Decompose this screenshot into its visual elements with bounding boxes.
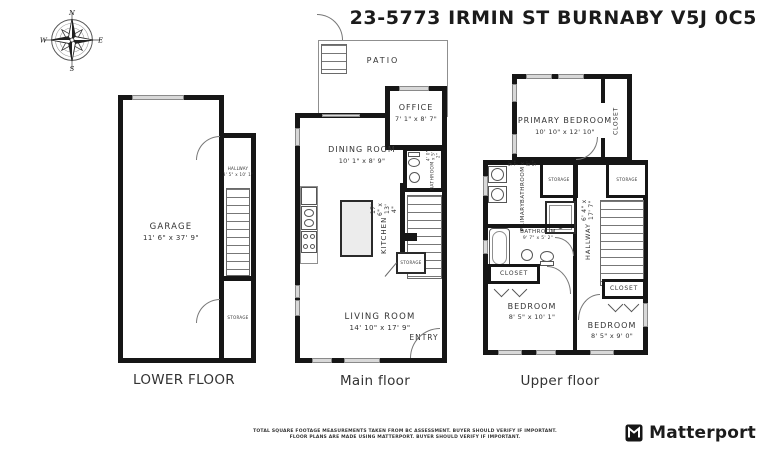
- garage-label: GARAGE: [121, 222, 221, 232]
- wall: [224, 276, 252, 281]
- sink-icon: [491, 168, 504, 181]
- toilet-icon: [408, 152, 420, 157]
- main-storage-label: STORAGE: [398, 260, 424, 265]
- stair-landing: [405, 233, 417, 241]
- sink-icon: [409, 172, 420, 183]
- sink-icon: [521, 249, 533, 261]
- window: [295, 128, 300, 146]
- wall: [400, 183, 405, 253]
- office-label: OFFICE: [387, 103, 445, 112]
- bedroom-left-label: BEDROOM: [490, 302, 574, 311]
- window: [132, 95, 184, 100]
- lower-floor-title: LOWER FLOOR: [118, 372, 250, 388]
- burner-icon: [310, 244, 315, 249]
- matterport-logo: Matterport: [625, 423, 756, 443]
- kitchen-island: [340, 200, 373, 257]
- patio-steps: [321, 44, 347, 74]
- window: [558, 74, 584, 79]
- dining-label: DINING ROOM: [312, 145, 412, 154]
- burner-icon: [303, 234, 308, 239]
- sink-bowl-icon: [304, 219, 314, 227]
- bedroom-left-dims: 8' 5" x 10' 1": [490, 313, 574, 321]
- main-bathroom-dims: 4' 0" x 5' 2": [426, 150, 441, 162]
- matterport-icon: [625, 424, 643, 442]
- window: [512, 84, 517, 102]
- matterport-wordmark: Matterport: [649, 423, 756, 443]
- closet-right-label: CLOSET: [604, 285, 644, 292]
- sink-bowl-icon: [304, 209, 314, 217]
- main-floor-title: Main floor: [325, 373, 425, 389]
- window: [483, 240, 488, 254]
- storage-right-label: STORAGE: [608, 177, 646, 182]
- office-dims: 7' 1" x 8' 7": [387, 115, 445, 123]
- upper-floor-title: Upper floor: [510, 373, 610, 389]
- closet-label: CLOSET: [613, 107, 620, 135]
- bedroom-right-dims: 8' 5" x 9' 0": [578, 332, 646, 340]
- wall: [601, 138, 605, 162]
- main-bathroom-name: BATHROOM: [431, 162, 436, 190]
- primary-bathroom-name-2: BATHROOM: [520, 166, 526, 203]
- window: [344, 358, 380, 363]
- dining-dims: 10' 1" x 8' 9": [312, 157, 412, 165]
- floorplan-sheet: 23-5773 IRMIN ST BURNABY V5J 0C5 N E S W…: [0, 0, 770, 450]
- bathtub-inner: [492, 231, 507, 265]
- window: [399, 86, 429, 91]
- lower-hallway-dims: 3' 5" x 10' 1": [221, 172, 255, 177]
- compass-west-label: W: [40, 36, 48, 44]
- door-arc: [317, 14, 343, 40]
- bathroom2-label: BATHROOM: [508, 229, 568, 235]
- disclaimer-line-2: FLOOR PLANS ARE MADE USING MATTERPORT. B…: [195, 435, 615, 441]
- page-title: 23-5773 IRMIN ST BURNABY V5J 0C5: [350, 7, 757, 29]
- window: [312, 358, 332, 363]
- hallway-label: HALLWAY 6' 4" x 17' 7": [578, 198, 598, 260]
- window: [295, 285, 300, 298]
- window: [295, 300, 300, 316]
- kitchen-label: KITCHEN 17' 6" x 13' 4": [372, 202, 396, 254]
- fridge-icon: [301, 187, 317, 205]
- hallway-dims: 6' 4" x 17' 7": [581, 198, 595, 223]
- compass-north-label: N: [68, 9, 76, 17]
- window: [498, 350, 522, 355]
- garage-dims: 11' 6" x 37' 9": [121, 234, 221, 242]
- wall: [601, 79, 605, 103]
- window: [536, 350, 556, 355]
- primary-closet-label: CLOSET: [607, 100, 625, 142]
- lower-stairs: [226, 188, 250, 276]
- closet-left-label: CLOSET: [490, 270, 538, 277]
- primary-bathroom-label: PRIMARY BATHROOM 9' 7" x 8' 5": [508, 168, 538, 224]
- main-bathroom-label: BATHROOM 4' 0" x 5' 2": [424, 150, 442, 190]
- window: [512, 134, 517, 154]
- window: [526, 74, 552, 79]
- upper-stairs: [600, 200, 644, 286]
- primary-bathroom-dims: 9' 7" x 8' 5": [508, 161, 538, 167]
- lower-hallway-label: HALLWAY: [221, 166, 255, 171]
- sliding-door: [322, 114, 360, 117]
- compass-icon: N E S W: [40, 8, 104, 72]
- kitchen-dims: 17' 6" x 13' 4": [370, 202, 398, 217]
- primary-bedroom-dims: 10' 10" x 12' 10": [515, 128, 615, 136]
- burner-icon: [303, 244, 308, 249]
- hallway-name: HALLWAY: [584, 223, 592, 260]
- lower-storage-label: STORAGE: [223, 315, 253, 320]
- disclaimer-text: TOTAL SQUARE FOOTAGE MEASUREMENTS TAKEN …: [195, 429, 615, 441]
- kitchen-name: KITCHEN: [380, 217, 388, 254]
- living-label: LIVING ROOM: [330, 312, 430, 322]
- burner-icon: [310, 234, 315, 239]
- bedroom-right-label: BEDROOM: [578, 321, 646, 330]
- sink-icon: [491, 188, 504, 201]
- toilet-icon: [408, 158, 420, 167]
- primary-bedroom-label: PRIMARY BEDROOM: [515, 116, 615, 125]
- window: [590, 350, 614, 355]
- patio-label: PATIO: [353, 56, 413, 65]
- compass-south-label: S: [70, 65, 75, 72]
- living-dims: 14' 10" x 17' 9": [330, 324, 430, 332]
- compass-east-label: E: [97, 36, 103, 44]
- storage-left-label: STORAGE: [542, 177, 576, 182]
